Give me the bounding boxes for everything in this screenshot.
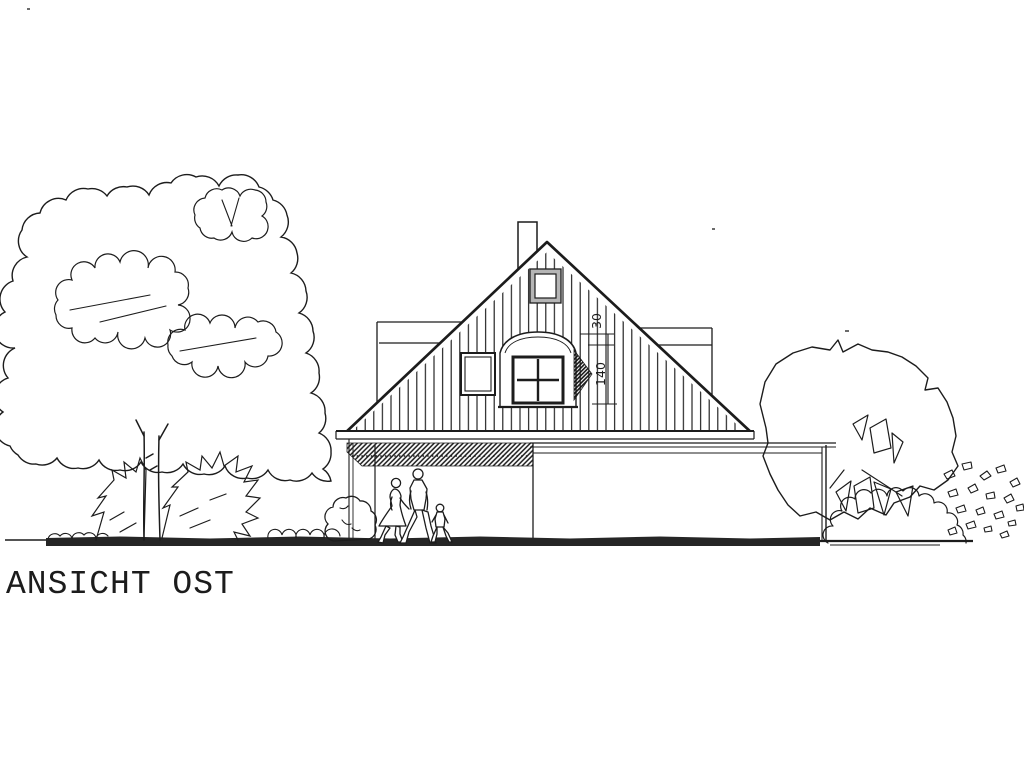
eaves-fascia (336, 431, 754, 439)
leaf-cluster-middle (168, 314, 282, 377)
left-tree-canopy (0, 175, 331, 482)
tree-trunk (136, 420, 168, 540)
leaf-cluster-top (194, 188, 268, 241)
child-head (436, 504, 444, 512)
right-bush-outline (823, 488, 966, 543)
carport-bush (325, 496, 376, 541)
elevation-drawing: 30 140 (0, 0, 1024, 768)
main-window (498, 332, 578, 407)
figures (378, 469, 452, 543)
elevation-sheet: 30 140 (0, 0, 1024, 768)
figure-child (431, 504, 452, 542)
left-tree (0, 175, 340, 540)
scattered-leaves (944, 462, 1024, 538)
gable-window (530, 269, 561, 303)
gable-window-pane (535, 274, 556, 298)
base-bushes (92, 452, 260, 540)
right-tree-canopy (760, 340, 958, 520)
right-tree (760, 340, 1024, 543)
scan-specks (27, 8, 849, 332)
dimension-label-lower: 140 (593, 362, 608, 386)
woman-head (391, 478, 400, 487)
left-attic-window (461, 353, 495, 395)
man-head (413, 469, 423, 479)
drawing-title: ANSICHT OST (6, 566, 235, 603)
ground (5, 537, 973, 547)
dimension-label-upper: 30 (589, 313, 604, 329)
